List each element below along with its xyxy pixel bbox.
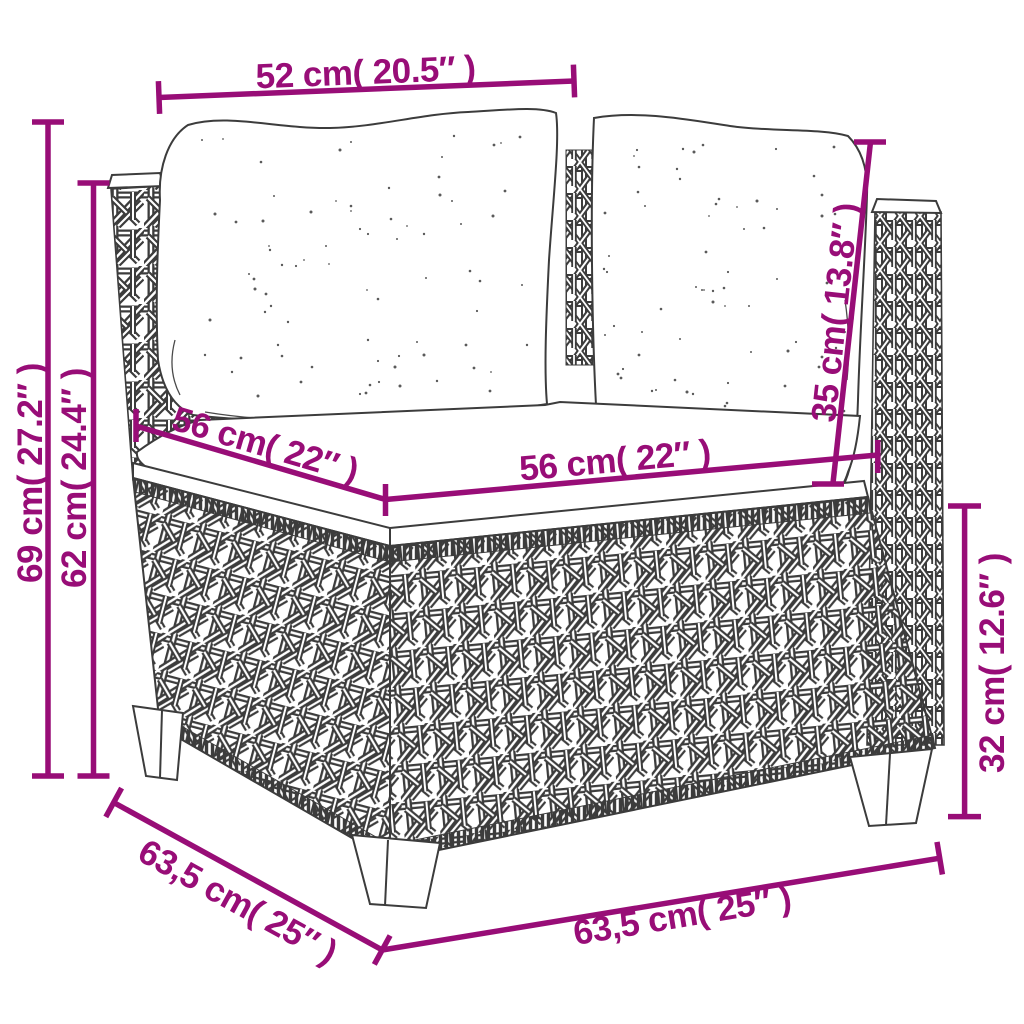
svg-text:62 cm( 24.4″ ): 62 cm( 24.4″ ) [55, 368, 94, 588]
svg-text:69 cm( 27.2″ ): 69 cm( 27.2″ ) [11, 363, 50, 583]
svg-text:32 cm( 12.6″ ): 32 cm( 12.6″ ) [973, 553, 1012, 773]
